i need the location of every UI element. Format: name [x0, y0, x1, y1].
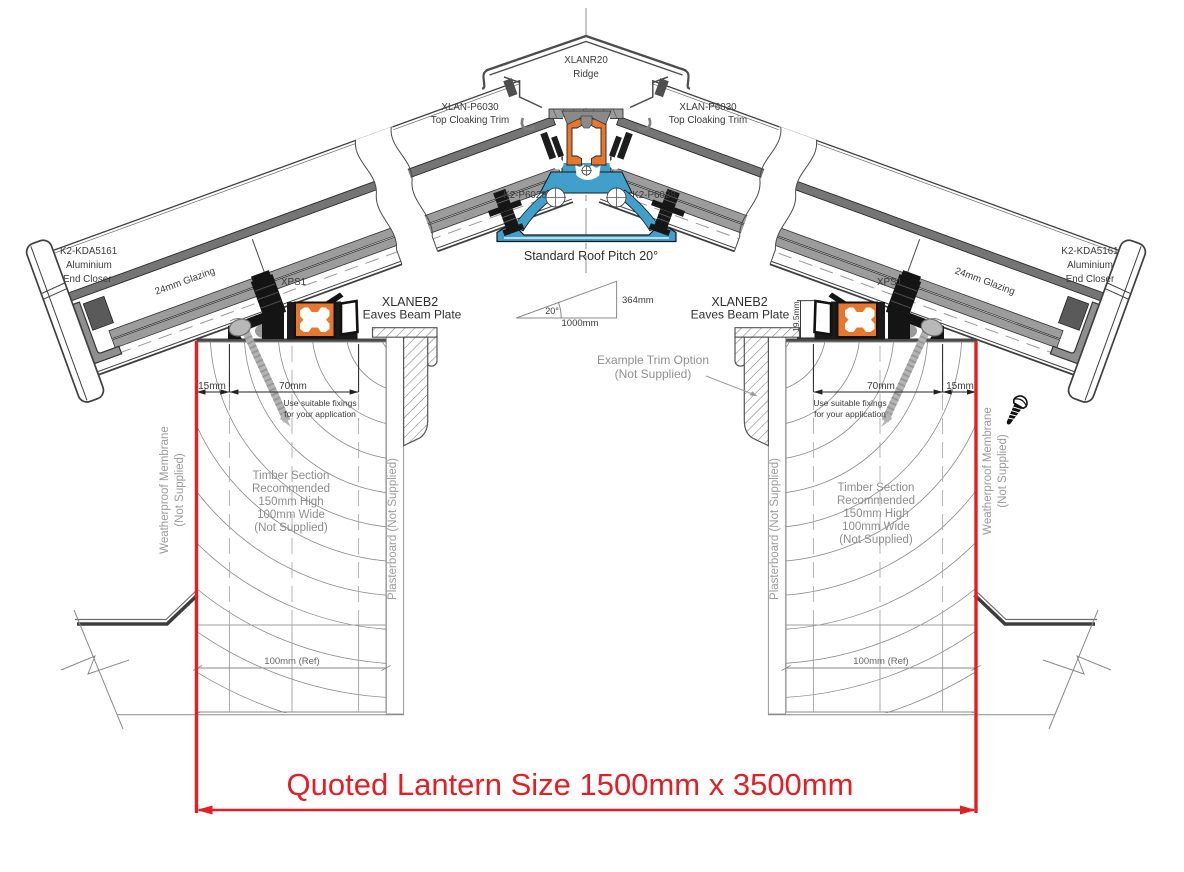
svg-text:End Closer: End Closer [63, 274, 112, 285]
svg-text:150mm High: 150mm High [843, 508, 908, 520]
svg-text:Plasterboard (Not Supplied): Plasterboard (Not Supplied) [769, 458, 781, 600]
svg-text:XLANR20: XLANR20 [564, 55, 608, 66]
svg-text:XLAN-P6030: XLAN-P6030 [679, 102, 737, 113]
svg-text:Eaves Beam Plate: Eaves Beam Plate [363, 308, 462, 322]
svg-text:100mm Wide: 100mm Wide [257, 509, 325, 521]
svg-text:100mm Wide: 100mm Wide [842, 521, 910, 533]
svg-text:Eaves Beam Plate: Eaves Beam Plate [691, 308, 790, 322]
svg-text:Ridge: Ridge [573, 69, 599, 80]
svg-text:Timber Section: Timber Section [838, 482, 915, 494]
svg-text:70mm: 70mm [279, 381, 307, 392]
svg-text:Top Cloaking Trim: Top Cloaking Trim [669, 115, 747, 126]
svg-text:K2-KDA5161: K2-KDA5161 [1061, 246, 1118, 257]
svg-text:(Not Supplied): (Not Supplied) [174, 453, 186, 527]
svg-text:(Not Supplied): (Not Supplied) [254, 522, 328, 534]
svg-text:Top Cloaking Trim: Top Cloaking Trim [431, 115, 509, 126]
svg-text:364mm: 364mm [622, 295, 654, 306]
svg-text:70mm: 70mm [867, 381, 895, 392]
svg-text:(Not Supplied): (Not Supplied) [615, 367, 692, 381]
svg-text:Weatherproof Membrane: Weatherproof Membrane [982, 407, 994, 535]
svg-text:Aluminium: Aluminium [1067, 260, 1113, 271]
svg-text:Standard Roof Pitch 20°: Standard Roof Pitch 20° [524, 249, 658, 263]
svg-text:XPS1: XPS1 [281, 277, 306, 288]
svg-text:Weatherproof Membrane: Weatherproof Membrane [159, 426, 171, 554]
svg-text:K2-P6028: K2-P6028 [632, 190, 676, 201]
svg-text:Example Trim Option: Example Trim Option [597, 353, 709, 367]
svg-text:100mm (Ref): 100mm (Ref) [264, 656, 319, 667]
svg-text:Use suitable fixings: Use suitable fixings [813, 398, 886, 408]
svg-text:for your application: for your application [814, 409, 886, 419]
svg-text:15mm: 15mm [946, 381, 974, 392]
svg-text:Timber Section: Timber Section [253, 470, 330, 482]
svg-text:End Closer: End Closer [1066, 274, 1115, 285]
svg-text:20°: 20° [545, 306, 559, 316]
svg-text:(Not Supplied): (Not Supplied) [997, 434, 1009, 508]
svg-text:Recommended: Recommended [252, 483, 330, 495]
svg-text:19.5mm: 19.5mm [791, 301, 801, 332]
svg-text:Plasterboard (Not Supplied): Plasterboard (Not Supplied) [387, 458, 399, 600]
svg-text:Quoted Lantern Size 1500mm x 3: Quoted Lantern Size 1500mm x 3500mm [287, 767, 854, 802]
svg-text:1000mm: 1000mm [562, 318, 599, 329]
svg-text:XLAN-P6030: XLAN-P6030 [441, 102, 499, 113]
svg-text:XPS1: XPS1 [877, 277, 902, 288]
svg-text:for your application: for your application [284, 409, 356, 419]
svg-text:Use suitable fixings: Use suitable fixings [283, 398, 356, 408]
svg-text:15mm: 15mm [198, 381, 226, 392]
svg-text:150mm High: 150mm High [258, 496, 323, 508]
svg-text:Aluminium: Aluminium [66, 260, 112, 271]
svg-text:K2-KDA5161: K2-KDA5161 [60, 246, 117, 257]
svg-text:(Not Supplied): (Not Supplied) [839, 534, 913, 546]
svg-text:Recommended: Recommended [837, 495, 915, 507]
svg-text:K2-P6028: K2-P6028 [503, 190, 547, 201]
svg-text:100mm (Ref): 100mm (Ref) [853, 656, 908, 667]
